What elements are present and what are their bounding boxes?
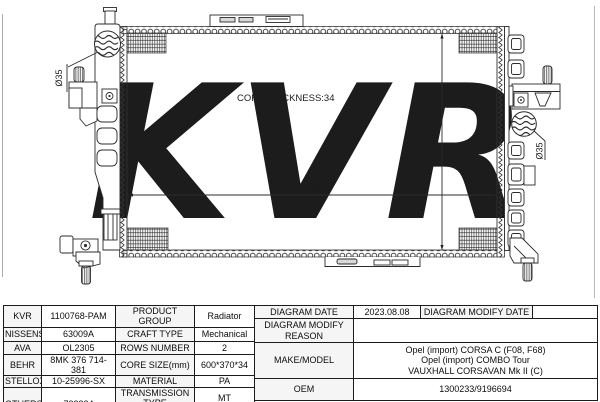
left-side-connector-pipe xyxy=(74,67,84,82)
make-model-line: VAUXHALL CORSAVAN Mk II (C) xyxy=(355,366,596,376)
diagram-modify-date-label-cell: DIAGRAM MODIFY DATE xyxy=(421,306,533,319)
top-mounting-bracket xyxy=(210,15,303,27)
spec-label-cell: CRAFT TYPE xyxy=(116,327,195,341)
diagram-info-table: DIAGRAM DATE 2023.08.08 DIAGRAM MODIFY D… xyxy=(254,305,598,401)
spec-value-cell: Mechanical xyxy=(195,327,255,341)
width-dimension-label: 600 xyxy=(306,183,323,194)
height-dimension-label: 370 xyxy=(428,95,439,112)
spec-value-cell: 600*370*34 xyxy=(195,354,255,376)
core-right-serration xyxy=(497,27,505,258)
spec-value-cell: Radiator xyxy=(195,306,255,328)
code-cell: OL2305 xyxy=(42,341,116,354)
make-model-line: Opel (import) COMBO Tour xyxy=(355,355,596,365)
right-tank xyxy=(505,27,561,282)
modify-reason-value-cell xyxy=(354,319,598,343)
core-left-serration xyxy=(120,27,128,258)
dimension-leader-right xyxy=(534,131,545,141)
modify-reason-label-cell: DIAGRAM MODIFY REASON xyxy=(255,319,354,343)
spec-label-cell: MATERIAL xyxy=(116,376,195,387)
diagram-date-label-cell: DIAGRAM DATE xyxy=(255,306,354,319)
core-bottom-edge xyxy=(123,250,497,257)
bottom-mounting-bracket xyxy=(325,257,420,267)
core-thickness-label: CORE THICKNESS:34 xyxy=(237,93,335,104)
drain-plug-left xyxy=(79,261,93,284)
spec-label-cell: PRODUCT GROUP xyxy=(116,306,195,328)
oem-value-cell: 1300233/9196694 xyxy=(354,379,598,401)
table-row: KVR 1100768-PAM PRODUCT GROUP Radiator xyxy=(4,306,255,328)
spec-value-cell: MT xyxy=(195,387,255,402)
brand-cell: OTHERS xyxy=(4,387,42,402)
table-row: BEHR 8MK 376 714-381 CORE SIZE(mm) 600*3… xyxy=(4,354,255,376)
diagram-modify-date-value-cell xyxy=(533,306,598,319)
radiator-datasheet-page: KVR xyxy=(0,0,600,402)
code-cell: 1100768-PAM xyxy=(42,306,116,328)
table-row: DIAGRAM DATE 2023.08.08 DIAGRAM MODIFY D… xyxy=(255,306,598,319)
spec-label-cell: CORE SIZE(mm) xyxy=(116,354,195,376)
spec-value-cell: 2 xyxy=(195,341,255,354)
brand-cell: NISSENS xyxy=(4,327,42,341)
table-row: OEM 1300233/9196694 xyxy=(255,379,598,401)
table-row: DIAGRAM MODIFY REASON xyxy=(255,319,598,343)
brand-cell: KVR xyxy=(4,306,42,328)
core-top-edge xyxy=(123,27,497,34)
table-row: MAKE/MODEL Opel (import) CORSA C (F08, F… xyxy=(255,343,598,379)
make-model-value-cell: Opel (import) CORSA C (F08, F68) Opel (i… xyxy=(354,343,598,379)
spec-label-cell: TRANSMISSION TYPE xyxy=(116,387,195,402)
spec-label-cell: ROWS NUMBER xyxy=(116,341,195,354)
make-model-line: Opel (import) CORSA C (F08, F68) xyxy=(355,345,596,355)
brand-cell: STELLOX xyxy=(4,376,42,387)
fin-block-bottom-right xyxy=(459,228,497,250)
fin-block-top-right xyxy=(459,33,497,53)
drain-plug-right xyxy=(521,258,534,281)
table-row: OTHERS 732824 TRANSMISSION TYPE MT xyxy=(4,387,255,402)
fin-block-bottom-left xyxy=(127,228,168,250)
diagram-date-value-cell: 2023.08.08 xyxy=(354,306,421,319)
code-cell: 732824 xyxy=(42,387,116,402)
code-cell: 8MK 376 714-381 xyxy=(42,354,116,376)
table-row: NISSENS 63009A CRAFT TYPE Mechanical xyxy=(4,327,255,341)
radiator-technical-drawing: KVR xyxy=(0,0,600,302)
code-cell: 63009A xyxy=(42,327,116,341)
table-row: STELLOX 10-25996-SX MATERIAL PA xyxy=(4,376,255,387)
brand-cell: AVA xyxy=(4,341,42,354)
cross-reference-table: KVR 1100768-PAM PRODUCT GROUP Radiator N… xyxy=(3,305,255,402)
code-cell: 10-25996-SX xyxy=(42,376,116,387)
make-model-label-cell: MAKE/MODEL xyxy=(255,343,354,379)
fin-block-top-left xyxy=(127,33,166,53)
port-left-diameter-label: Ø35 xyxy=(54,69,64,86)
spec-value-cell: PA xyxy=(195,376,255,387)
port-right-diameter-label: Ø35 xyxy=(535,142,545,159)
brand-cell: BEHR xyxy=(4,354,42,376)
oem-label-cell: OEM xyxy=(255,379,354,401)
table-row: AVA OL2305 ROWS NUMBER 2 xyxy=(4,341,255,354)
